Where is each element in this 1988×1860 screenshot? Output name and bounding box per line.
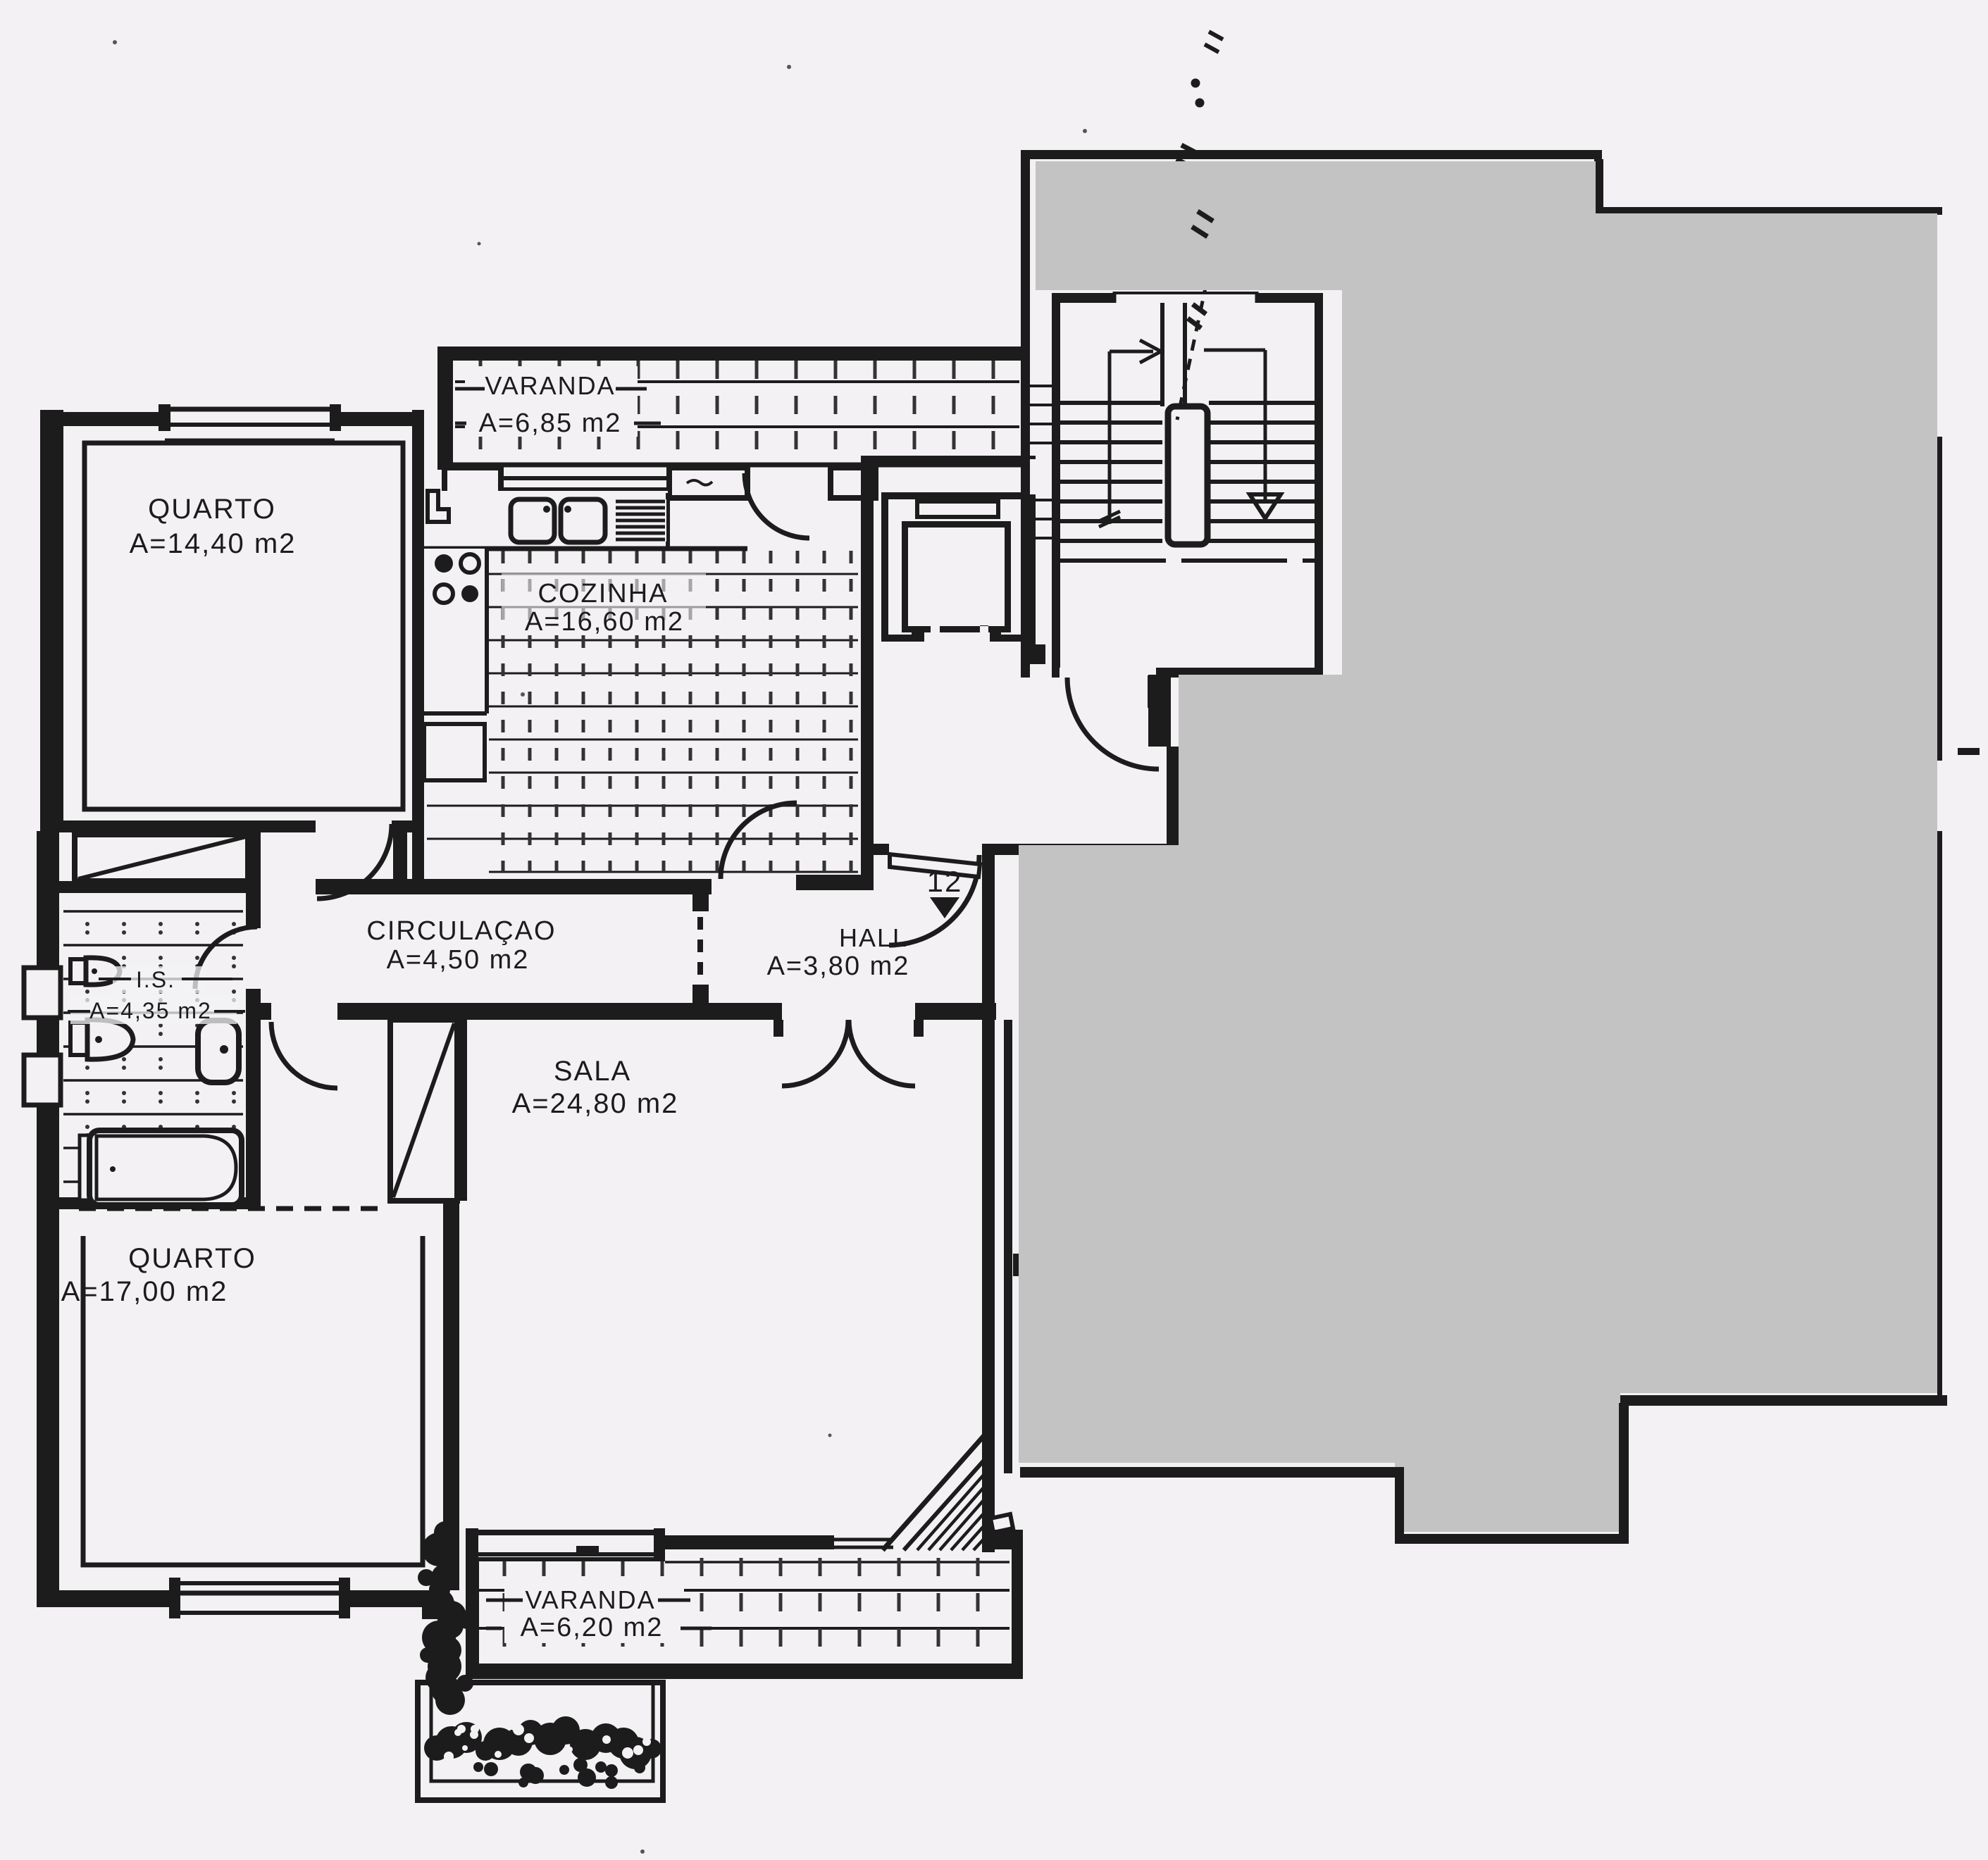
svg-text:VARANDA: VARANDA	[485, 371, 615, 400]
svg-text:A=4,50 m2: A=4,50 m2	[387, 945, 530, 975]
svg-text:QUARTO: QUARTO	[148, 494, 276, 525]
svg-text:A=24,80 m2: A=24,80 m2	[512, 1088, 679, 1119]
svg-text:I.S.: I.S.	[136, 967, 175, 992]
svg-text:CIRCULAÇAO: CIRCULAÇAO	[366, 916, 556, 946]
svg-text:A=4,35 m2: A=4,35 m2	[89, 998, 212, 1023]
svg-text:A=3,80 m2: A=3,80 m2	[767, 951, 910, 981]
svg-text:QUARTO: QUARTO	[128, 1243, 256, 1274]
svg-text:A=16,60 m2: A=16,60 m2	[525, 607, 684, 637]
svg-text:SALA: SALA	[554, 1056, 631, 1087]
svg-text:12: 12	[927, 865, 963, 898]
svg-text:A=17,00 m2: A=17,00 m2	[61, 1276, 228, 1307]
svg-text:HALL: HALL	[839, 923, 908, 952]
svg-text:VARANDA: VARANDA	[525, 1585, 655, 1614]
svg-text:A=6,85 m2: A=6,85 m2	[479, 408, 622, 438]
svg-text:A=6,20 m2: A=6,20 m2	[521, 1613, 664, 1642]
svg-text:COZINHA: COZINHA	[538, 579, 669, 608]
svg-text:A=14,40 m2: A=14,40 m2	[130, 528, 297, 559]
